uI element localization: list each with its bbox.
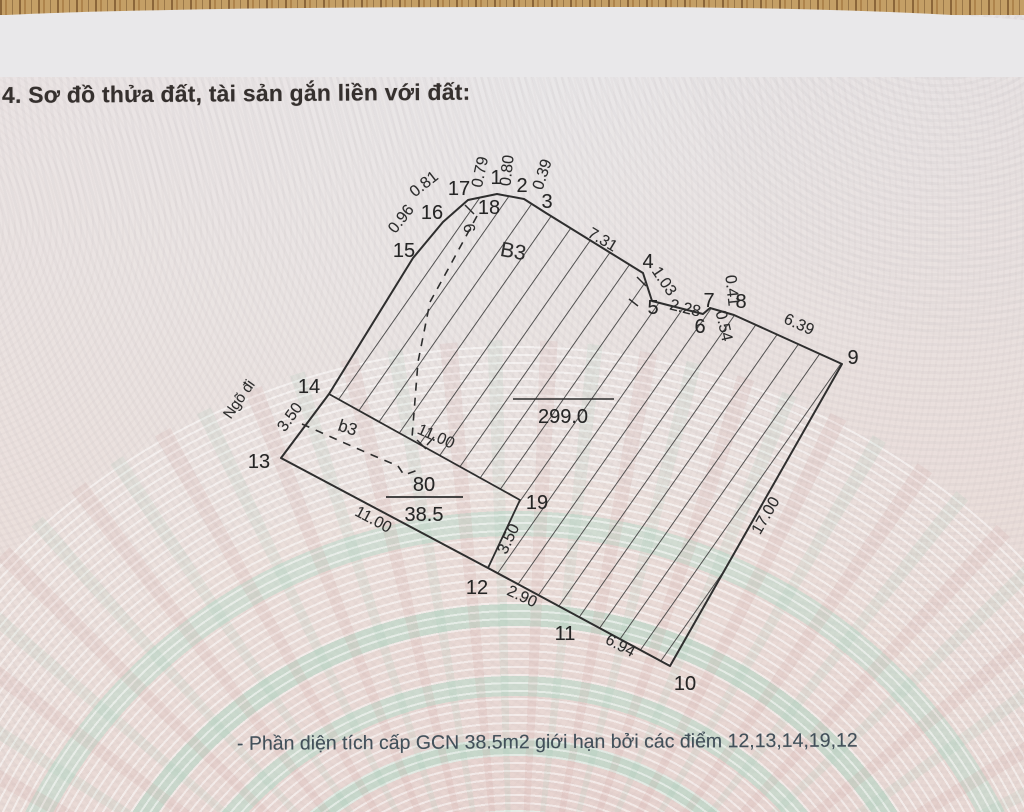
vertex-label-5: 5 — [647, 297, 658, 319]
gcn-area-value: 38.5 — [405, 504, 444, 526]
vertex-label-7: 7 — [703, 290, 714, 312]
vertex-label-3: 3 — [541, 191, 552, 213]
parcel-number: 80 — [413, 474, 435, 496]
vertex-label-18: 18 — [478, 197, 500, 219]
dim-label-6: 1.03 — [648, 264, 680, 299]
hatched-parcel-area — [281, 194, 842, 666]
zone-label-0: B3 — [498, 238, 527, 265]
vertex-label-11: 11 — [555, 623, 576, 645]
parcel-diagram: 123456789101112131415161718190.960.810.7… — [0, 0, 1024, 812]
dim-label-10: 6.39 — [781, 311, 816, 339]
vertex-label-12: 12 — [466, 577, 488, 599]
vertex-label-16: 16 — [421, 202, 443, 224]
vertex-label-14: 14 — [298, 376, 320, 398]
dim-label-3: 0.80 — [497, 154, 517, 187]
zone-label-2: Ngõ đi — [220, 377, 259, 422]
vertex-label-9: 9 — [847, 347, 858, 369]
hatched-area-value: 299.0 — [538, 406, 588, 428]
dim-label-0: 0.96 — [385, 202, 418, 237]
dim-label-15: 11.00 — [352, 503, 394, 536]
vertex-label-15: 15 — [393, 240, 415, 262]
gcn-area-note: - Phần diện tích cấp GCN 38.5m2 giới hạn… — [237, 729, 917, 756]
vertex-label-17: 17 — [448, 178, 470, 200]
zone-label-1: b3 — [336, 416, 360, 440]
vertex-label-2: 2 — [516, 175, 527, 197]
dim-label-1: 0.81 — [407, 168, 442, 201]
dim-label-2: 0.79 — [469, 155, 492, 189]
dim-label-9: 0.41 — [721, 274, 741, 307]
photographed-certificate-page: 4. Sơ đồ thửa đất, tài sản gắn liền với … — [0, 0, 1024, 812]
vertex-label-19: 19 — [526, 492, 548, 514]
vertex-label-10: 10 — [674, 673, 696, 695]
vertex-label-13: 13 — [248, 451, 270, 473]
dim-label-4: 0.39 — [530, 157, 556, 192]
